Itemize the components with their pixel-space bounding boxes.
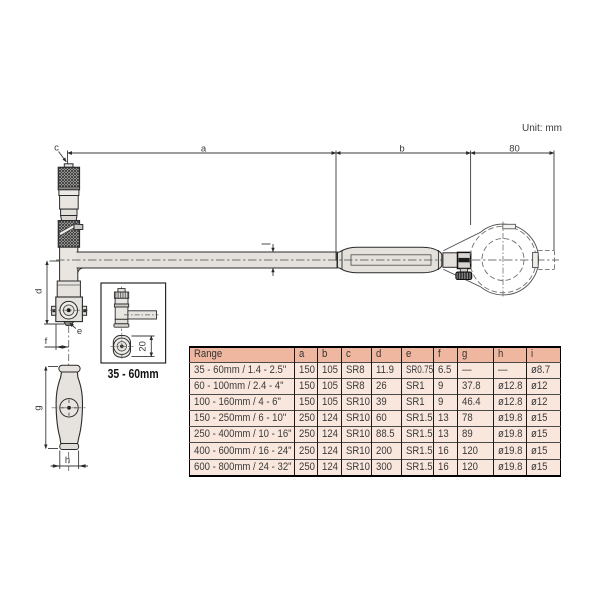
svg-text:35 - 60mm: 35 - 60mm (108, 366, 159, 381)
svg-text:f: f (45, 336, 48, 347)
svg-text:80: 80 (509, 144, 520, 155)
svg-text:b: b (399, 144, 404, 155)
svg-text:Unit: mm: Unit: mm (522, 123, 562, 134)
svg-text:20: 20 (138, 341, 149, 352)
svg-text:g: g (33, 405, 44, 410)
svg-text:a: a (201, 144, 207, 155)
svg-text:e: e (77, 326, 82, 337)
svg-text:d: d (34, 289, 45, 294)
svg-text:h: h (65, 455, 70, 466)
